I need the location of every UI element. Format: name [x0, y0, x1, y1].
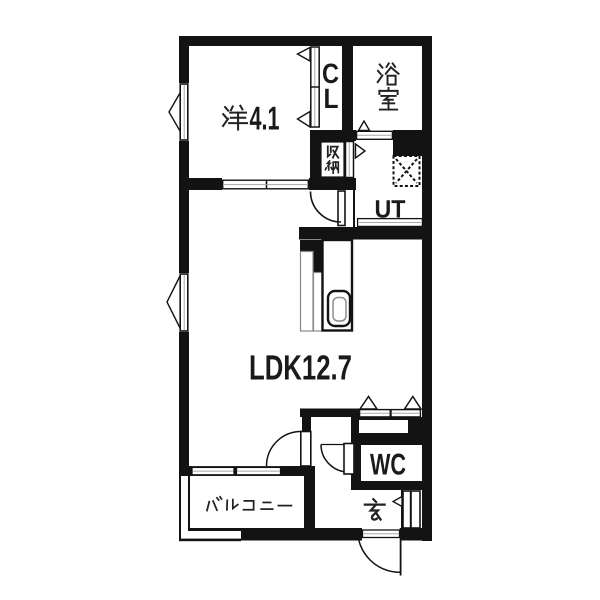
svg-text:L: L [324, 83, 339, 114]
svg-text:UT: UT [375, 196, 406, 224]
svg-text:WC: WC [370, 449, 406, 482]
svg-text:4.1: 4.1 [250, 100, 280, 137]
svg-text:LDK12.7: LDK12.7 [249, 349, 352, 388]
